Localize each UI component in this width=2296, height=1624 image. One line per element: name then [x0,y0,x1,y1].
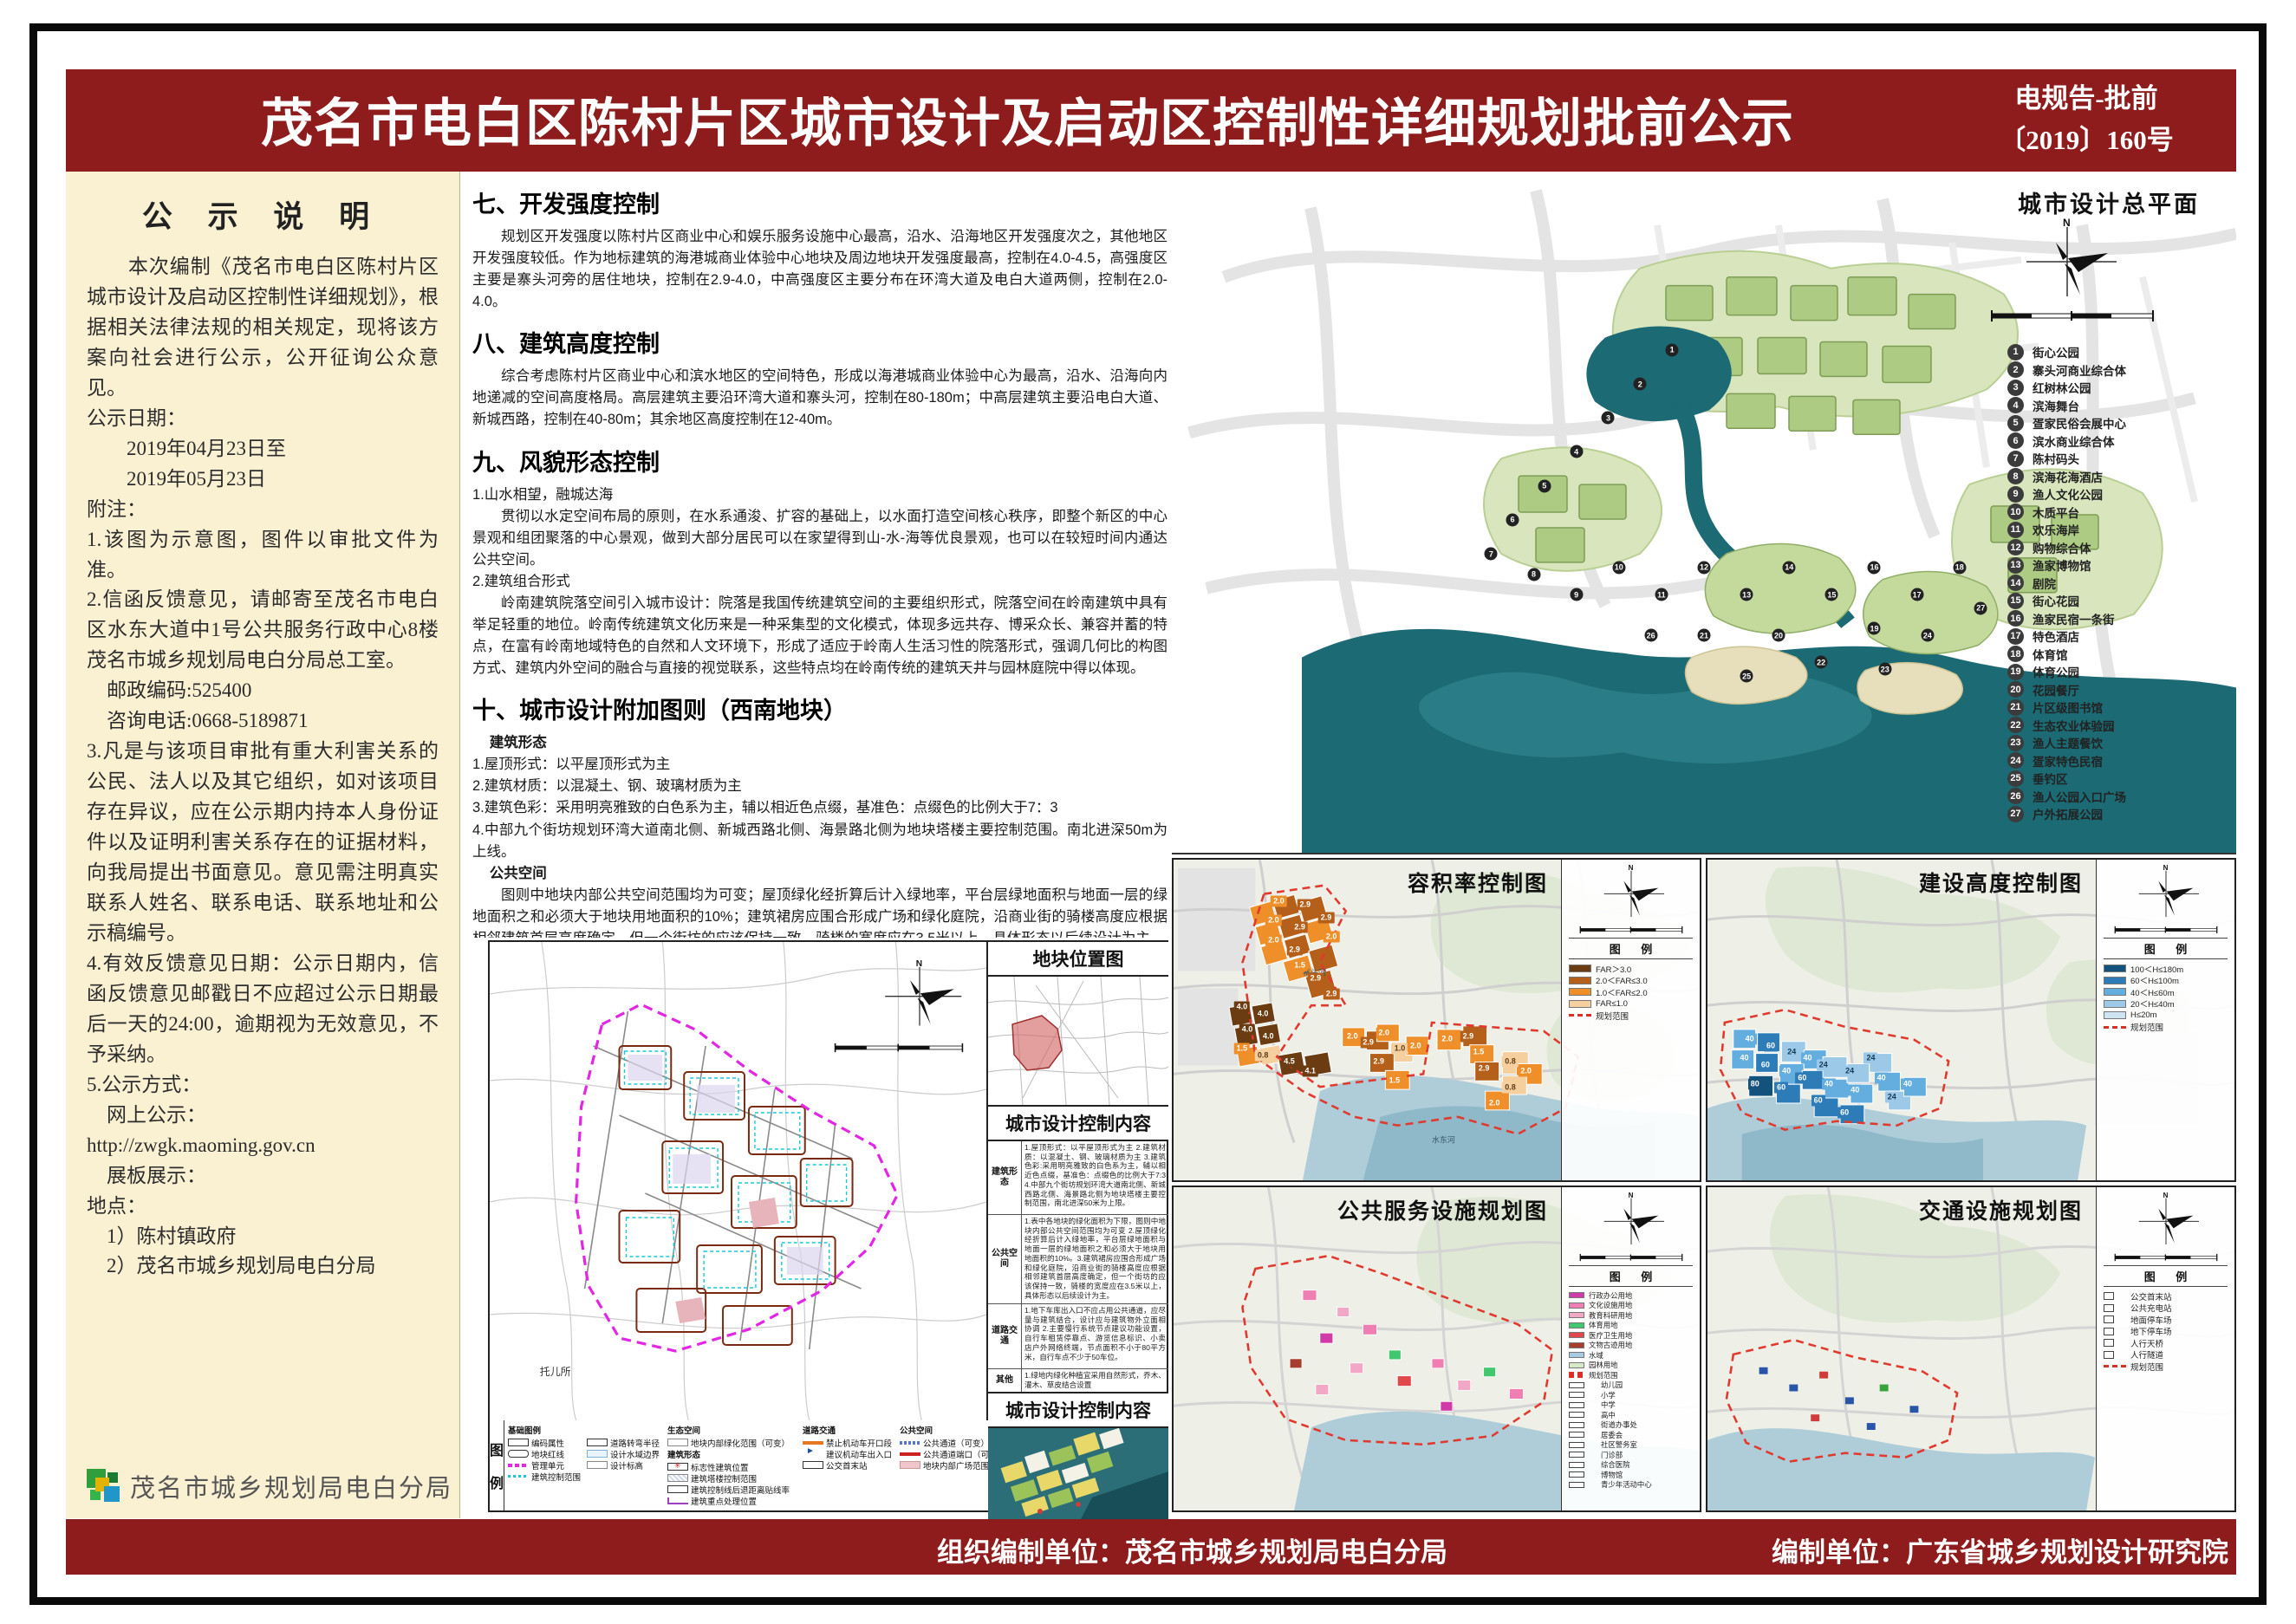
sidebar-paragraph: 邮政编码:525400 [87,676,439,706]
scale-bar [1579,926,1683,934]
far-value-chip: 2.0 [1344,1030,1361,1042]
legend-number-badge: 20 [2007,681,2024,698]
legend-swatch [1569,1312,1584,1318]
map-number-marker: 9 [1570,588,1583,601]
legend-row: 1.0＜FAR≤2.0 [1569,986,1693,998]
agency-logo-text: 茂名市城乡规划局电白分局 [130,1468,452,1504]
height-value-chip: 60 [1795,1072,1809,1083]
service-panel-title: 公共服务设施规划图 [1337,1194,1548,1225]
height-value-chip: 40 [1822,1079,1836,1090]
far-value-chip: 2.0 [1376,1027,1393,1038]
legend-number-badge: 9 [2007,486,2024,503]
legend-swatch [1569,1000,1591,1008]
height-value-chip: 60 [1764,1040,1778,1051]
sidebar-paragraph: 2019年05月23日 [87,464,439,495]
legend-label: 街心花园 [2033,592,2079,609]
legend-number-badge: 4 [2007,397,2024,413]
legend-symbol [667,1474,688,1482]
legend-row: 水域 [1569,1350,1693,1361]
master-legend-item: 11 欢乐海岸 [2007,521,2221,539]
map-number-marker: 19 [1868,622,1881,635]
legend-group-eco-form: 生态空间 地块内部绿化范围（可变） 建筑形态 标志性建筑位置 建筑塔楼控制范围 [667,1424,797,1507]
master-legend-item: 12 购物综合体 [2007,539,2221,557]
legend-header: 图 例 [2104,938,2228,959]
far-legend: 图 例 FAR＞3.0 2.0＜FAR≤3.0 1.0＜FAR≤2.0 FAR≤… [1561,860,1700,1180]
legend-number-badge: 12 [2007,539,2024,555]
control-table-title: 城市设计控制内容 [988,1105,1168,1141]
legend-label: 街心公园 [2033,343,2079,361]
master-legend-item: 22 生态农业体验园 [2007,717,2221,735]
legend-swatch [1569,1014,1591,1017]
height-value-chip: 24 [1817,1059,1831,1070]
master-legend-item: 15 街心花园 [2007,592,2221,610]
compass-icon [2126,1192,2206,1248]
render-title: 城市设计控制内容 [988,1392,1168,1428]
legend-swatch [2104,1026,2126,1029]
far-control-panel: 寨头河 水东河 2.02.92.02.92.02.92.92.01.52.92.… [1172,858,1701,1182]
legend-swatch [1569,1362,1584,1368]
legend-number-badge: 18 [2007,646,2024,662]
far-value-chip: 1.5 [1234,1043,1251,1055]
page-title: 茂名市电白区陈村片区城市设计及启动区控制性详细规划批前公示 [261,81,2042,157]
legend-swatch [2104,1292,2114,1300]
legend-row: 居委会 [1569,1430,1693,1440]
section10-paragraph2: 图则中地块内部公共空间范围均为可变；屋顶绿化经折算后计入绿地率，平台层绿地面积与… [472,885,1168,938]
legend-row: 人行隧道 [2104,1349,2228,1361]
section9-sub1: 1.山水相望，融城达海 [472,484,1168,506]
legend-label: 体育公园 [2033,663,2079,680]
legend-number-badge: 13 [2007,557,2024,574]
legend-swatch [2104,1011,2126,1019]
far-value-chip: 2.0 [1265,934,1282,945]
section10-item2: 2.建筑材质：以混凝土、钢、玻璃材质为主 [472,776,1168,797]
legend-swatch [1569,1442,1584,1448]
legend-label: 户外拓展公园 [2033,805,2103,822]
master-legend-item: 27 户外拓展公园 [2007,805,2221,823]
legend-label: 滨海舞台 [2033,397,2079,414]
public-service-panel: 公共服务设施规划图 图 例 行政办公用地 文化设施用地 教育科研用地 体育用地 [1172,1186,1701,1512]
legend-label: 疍家民俗会展中心 [2033,414,2126,432]
map-number-marker: 15 [1825,588,1838,601]
far-panel-title: 容积率控制图 [1408,867,1548,898]
height-value-chip: 60 [1811,1095,1825,1106]
control-row-public: 公共空间 1.表中各地块的绿化面积为下限，图则中地块内部公共空间范围均为可变 2… [988,1215,1168,1304]
map-number-marker: 21 [1698,629,1711,642]
legend-number-badge: 21 [2007,699,2024,716]
map-number-marker: 23 [1878,663,1891,676]
map-number-marker: 4 [1570,445,1583,458]
section7-heading: 七、开发强度控制 [472,185,1168,219]
legend-group-basic: 基础图例 编码属性 地块红线 管理单元 建筑控制范围 [508,1424,662,1507]
map-number-marker: 6 [1506,513,1519,526]
legend-number-badge: 2 [2007,361,2024,378]
legend-swatch [1569,1342,1584,1348]
legend-number-badge: 26 [2007,788,2024,804]
legend-label: 花园餐厅 [2033,681,2079,698]
legend-row: 教育科研用地 [1569,1310,1693,1321]
map-number-marker: 25 [1740,670,1753,683]
legend-swatch [1569,1372,1584,1378]
far-value-chip: 4.5 [1281,1056,1298,1068]
legend-row: 博物馆 [1569,1470,1693,1480]
far-value-chip: 2.0 [1271,896,1287,907]
location-map [988,977,1168,1105]
master-plan-title: 城市设计总平面 [2018,185,2200,219]
height-value-chip: 24 [1885,1091,1899,1102]
height-value-chip: 24 [1843,1066,1857,1077]
legend-swatch [2104,988,2126,996]
height-value-chip: 40 [1779,1066,1793,1077]
map-number-marker: 8 [1527,568,1540,581]
map-number-marker: 5 [1538,479,1551,492]
legend-number-badge: 19 [2007,664,2024,680]
legend-item: 设计标高 [587,1459,662,1471]
legend-label: 特色酒店 [2033,627,2079,645]
height-value-chip: 40 [1848,1085,1862,1096]
legend-row: 社区警务室 [1569,1440,1693,1451]
legend-number-badge: 24 [2007,752,2024,769]
legend-side-label: 图例 [490,1420,504,1510]
far-value-chip: 2.0 [1324,931,1340,942]
sidebar-title: 公 示 说 明 [87,192,439,237]
legend-row: FAR＞3.0 [1569,963,1693,975]
legend-row: 文物古迹用地 [1569,1341,1693,1351]
legend-symbol [667,1497,688,1504]
legend-swatch [1569,1392,1584,1398]
sidebar-paragraph: 1）陈村镇政府 [87,1222,439,1252]
legend-row: 100＜H≤180m [2104,963,2228,975]
legend-swatch [1569,1412,1584,1418]
legend-swatch [2104,1365,2126,1367]
legend-symbol [803,1441,823,1445]
document-number-line2: 〔2019〕160号 [1943,120,2229,161]
legend-swatch [1569,988,1591,996]
legend-item: 建筑重点处理位置 [667,1495,797,1506]
legend-swatch [1569,1422,1584,1428]
legend-row: 街道办事处 [1569,1420,1693,1431]
section9-paragraph2: 岭南建筑院落空间引入城市设计：院落是我国传统建筑空间的主要组织形式，院落空间在岭… [472,593,1168,679]
river-label-2: 水东河 [1432,1134,1455,1144]
section10-sub2: 公共空间 [472,863,1168,885]
legend-symbol [900,1441,920,1445]
agency-logo-icon [87,1469,121,1504]
control-table: 建筑形态 1.屋顶形式：以平屋顶形式为主 2.建筑材质：以混凝土、钢、玻璃材质为… [988,1141,1168,1392]
legend-label: 渔家博物馆 [2033,556,2091,574]
legend-label: 渔家民宿一条街 [2033,610,2115,627]
far-value-chip: 2.9 [1460,1030,1477,1042]
sidebar-paragraph: 公示日期： [87,404,439,434]
plan-side-panel: 地块位置图 城市设计控制内容 建筑形态 [988,942,1168,1510]
legend-row: 幼儿园 [1569,1380,1693,1391]
legend-item: 建筑塔楼控制范围 [667,1472,797,1484]
master-legend-item: 6 滨水商业综合体 [2007,432,2221,451]
legend-symbol [508,1450,529,1458]
legend-swatch [1569,1432,1584,1438]
footer-design-unit: 编制单位：广东省城乡规划设计研究院 [1772,1530,2228,1569]
legend-label: 滨海花海酒店 [2033,468,2103,485]
legend-symbol [587,1461,608,1469]
legend-symbol [508,1439,529,1446]
sidebar-paragraphs: 本次编制《茂名市电白区陈村片区城市设计及启动区控制性详细规划》，根据相关法律法规… [87,252,439,1282]
legend-row: 门诊部 [1569,1450,1693,1460]
section10-sub1: 建筑形态 [472,732,1168,754]
legend-swatch [1569,1462,1584,1468]
far-value-chip: 2.9 [1370,1056,1387,1068]
legend-swatch [2104,1351,2114,1359]
compass-icon [1591,1192,1671,1248]
legend-row: FAR≤1.0 [1569,998,1693,1010]
header-bar: 茂名市电白区陈村片区城市设计及启动区控制性详细规划批前公示 电规告-批前 〔20… [66,69,2236,172]
far-value-chip: 4.1 [1303,1066,1319,1077]
master-plan-region: 城市设计总平面 1 街心公园 2 寨头河商业综合体 3 红树林公园 4 滨海舞台… [1172,173,2236,854]
sidebar-paragraph: 2.信函反馈意见，请邮寄至茂名市电白区水东大道中1号公共服务行政中心8楼茂名市城… [87,585,439,676]
map-number-marker: 12 [1698,561,1711,574]
legend-symbol [587,1439,608,1446]
master-legend-item: 2 寨头河商业综合体 [2007,361,2221,380]
legend-swatch [1569,1302,1584,1309]
legend-header: 图 例 [1569,1265,1693,1287]
map-label-nursery: 托儿所 [540,1366,571,1378]
section10-heading: 十、城市设计附加图则（西南地块） [472,692,1168,725]
legend-swatch [1569,1471,1584,1478]
legend-swatch [2104,977,2126,984]
legend-number-badge: 14 [2007,575,2024,591]
sidebar-paragraph: 展板展示： [87,1161,439,1192]
far-value-chip: 2.9 [1291,921,1308,932]
legend-row: 中学 [1569,1400,1693,1411]
legend-symbol [667,1439,688,1446]
height-value-chip: 40 [1875,1072,1889,1083]
document-number-line1: 电规告-批前 [1943,78,2229,120]
text-column: 七、开发强度控制 规划区开发强度以陈村片区商业中心和娱乐服务设施中心最高，沿水、… [472,173,1168,938]
map-number-marker: 1 [1666,343,1679,356]
legend-swatch [1569,1482,1584,1488]
map-number-marker: 27 [1974,601,1987,614]
legend-label: 木质平台 [2033,503,2079,521]
map-number-marker: 14 [1783,561,1796,574]
height-value-chip: 24 [1785,1047,1798,1058]
master-legend-item: 3 红树林公园 [2007,379,2221,397]
master-legend-item: 9 渔人文化公园 [2007,485,2221,503]
legend-label: 垂钓区 [2033,770,2068,787]
map-number-marker: 20 [1772,629,1785,642]
master-legend-item: 8 滨海花海酒店 [2007,468,2221,486]
legend-symbol [900,1461,920,1469]
section7-paragraph: 规划区开发强度以陈村片区商业中心和娱乐服务设施中心最高，沿水、沿海地区开发强度次… [472,226,1168,313]
legend-swatch [1569,1352,1584,1358]
legend-swatch [1569,1322,1584,1328]
sidebar-paragraph: 网上公示： [87,1101,439,1131]
map-number-marker: 11 [1655,588,1668,601]
legend-row: 人行天桥 [2104,1337,2228,1349]
far-value-chip: 2.0 [1265,915,1282,926]
compass-icon [2011,218,2124,302]
legend-row: 综合医院 [1569,1460,1693,1471]
compass-icon [2126,865,2206,920]
legend-swatch [1569,965,1591,972]
legend-swatch [2104,1328,2114,1335]
legend-item: 标志性建筑位置 [667,1461,797,1472]
section9-paragraph1: 贯彻以水定空间布局的原则，在水系通浚、扩容的基础上，以水面打造空间核心秩序，即整… [472,506,1168,571]
master-plan-legend: 1 街心公园 2 寨头河商业综合体 3 红树林公园 4 滨海舞台 5 疍家民俗会… [2007,343,2221,823]
map-number-marker: 22 [1815,656,1828,669]
legend-label: 购物综合体 [2033,539,2091,556]
footer-bar: 组织编制单位：茂名市城乡规划局电白分局 编制单位：广东省城乡规划设计研究院 [66,1519,2236,1575]
far-value-chip: 2.9 [1318,912,1335,923]
legend-number-badge: 3 [2007,380,2024,396]
master-legend-item: 17 特色酒店 [2007,627,2221,646]
legend-item: 编码属性 [508,1437,583,1448]
map-number-marker: 24 [1921,629,1934,642]
control-row-other: 其他 1.绿地内绿化种植宜采用自然形式，乔木、灌木、草皮结合设置 [988,1369,1168,1392]
legend-label: 疍家特色民宿 [2033,752,2103,770]
legend-swatch [2104,1304,2114,1312]
detailed-plan-figure: 托儿所 图例 基础图例 编码属性 地块红线 [488,940,1168,1512]
legend-label: 剧院 [2033,575,2056,592]
section8-paragraph: 综合考虑陈村片区商业中心和滨水地区的空间特色，形成以海港城商业体验中心为最高，沿… [472,366,1168,431]
legend-label: 红树林公园 [2033,379,2091,396]
legend-row: 园林用地 [1569,1361,1693,1371]
legend-number-badge: 8 [2007,468,2024,484]
legend-label: 滨水商业综合体 [2033,432,2115,450]
legend-row: 体育用地 [1569,1321,1693,1331]
master-legend-item: 23 渔人主题餐饮 [2007,734,2221,752]
master-legend-item: 13 渔家博物馆 [2007,556,2221,575]
far-value-chip: 1.5 [1471,1047,1487,1058]
master-legend-item: 16 渔家民宿一条街 [2007,610,2221,628]
legend-row: 公共充电站 [2104,1302,2228,1315]
scale-bar [2114,926,2218,934]
legend-symbol [508,1464,529,1467]
section9-sub2: 2.建筑组合形式 [472,571,1168,593]
map-number-marker: 3 [1602,412,1615,425]
legend-header: 图 例 [2104,1265,2228,1287]
sidebar-paragraph: 本次编制《茂名市电白区陈村片区城市设计及启动区控制性详细规划》，根据相关法律法规… [87,252,439,404]
far-value-chip: 2.9 [1476,1062,1493,1074]
legend-number-badge: 10 [2007,503,2024,520]
far-value-chip: 2.9 [1286,944,1303,955]
section10-item3: 3.建筑色彩：采用明亮雅致的白色系为主，辅以相近色点缀，基准色：点缀色的比例大于… [472,797,1168,819]
legend-number-badge: 11 [2007,522,2024,538]
compass-icon [872,958,967,1032]
map-number-marker: 26 [1644,629,1657,642]
legend-swatch [2104,1315,2114,1323]
legend-header: 图 例 [1569,938,1693,959]
legend-symbol [803,1461,823,1469]
legend-number-badge: 27 [2007,806,2024,822]
far-value-chip: 1.5 [1387,1075,1403,1087]
scale-bar [2114,1253,2218,1262]
master-legend-item: 7 陈村码头 [2007,450,2221,468]
legend-label: 渔人文化公园 [2033,485,2103,503]
legend-swatch [2104,1000,2126,1008]
height-value-chip: 40 [1738,1053,1752,1064]
height-value-chip: 80 [1748,1079,1762,1090]
far-value-chip: 4.0 [1255,1008,1272,1019]
far-value-chip: 4.0 [1260,1030,1277,1042]
footer-organizing-unit: 组织编制单位：茂名市城乡规划局电白分局 [937,1530,1447,1569]
far-value-chip: 1.5 [1291,960,1308,971]
master-legend-item: 19 体育公园 [2007,663,2221,681]
map-number-marker: 10 [1612,561,1625,574]
far-value-chip: 2.9 [1324,989,1340,1000]
legend-swatch [2104,1339,2114,1347]
height-value-chip: 60 [1759,1059,1772,1070]
legend-swatch [1569,1332,1584,1338]
compass-icon [1591,865,1671,920]
legend-item: 建筑控制范围 [508,1471,583,1482]
legend-number-badge: 25 [2007,770,2024,787]
sidebar-paragraph: 5.公示方式： [87,1070,439,1101]
traffic-legend: 图 例 公交首末站 公共充电站 地面停车场 地下停车场 人行天桥 [2096,1187,2234,1510]
master-legend-item: 26 渔人公园入口广场 [2007,788,2221,806]
legend-row: 小学 [1569,1390,1693,1400]
legend-swatch [1569,1402,1584,1408]
legend-row: 医疗卫生用地 [1569,1330,1693,1341]
legend-item: 设计水域边界 [587,1448,662,1459]
legend-item: 建筑控制线后退距离贴线率 [667,1484,797,1495]
legend-label: 寨头河商业综合体 [2033,361,2126,379]
legend-row: 地下停车场 [2104,1326,2228,1338]
legend-row: H≤20m [2104,1010,2228,1022]
notice-board: N 茂名市电白区陈村片区城市设计及启动区控制性详细规划批前公示 电规告-批前 〔… [0,0,2296,1624]
section10-item4: 4.中部九个街坊规划环湾大道南北侧、新城西路北侧、海景路北侧为地块塔楼主要控制范… [472,820,1168,863]
notice-sidebar: 公 示 说 明 本次编制《茂名市电白区陈村片区城市设计及启动区控制性详细规划》，… [66,172,460,1518]
sidebar-paragraph: 3.凡是与该项目审批有重大利害关系的公民、法人以及其它组织，如对该项目存在异议，… [87,737,439,949]
height-value-chip: 24 [1863,1053,1877,1064]
legend-row: 规划范围 [1569,1010,1693,1022]
scale-bar [1579,1253,1683,1262]
legend-number-badge: 6 [2007,432,2024,449]
legend-group-road: 道路交通 禁止机动车开口段 建议机动车出入口 公交首末站 [803,1424,894,1507]
traffic-panel-title: 交通设施规划图 [1919,1194,2083,1225]
legend-label: 欢乐海岸 [2033,521,2079,538]
legend-number-badge: 22 [2007,717,2024,733]
scale-bar [834,1043,964,1053]
legend-label: 渔人主题餐饮 [2033,734,2103,751]
legend-number-badge: 1 [2007,344,2024,361]
legend-item: 管理单元 [508,1459,583,1471]
control-row-road: 道路交通 1.地下车库出入口不应占用公共通道，应尽量与建筑结合，设计应与建筑物外… [988,1304,1168,1369]
legend-row: 规划范围 [2104,1022,2228,1034]
legend-row: 行政办公用地 [1569,1290,1693,1301]
far-value-chip: 0.8 [1502,1082,1519,1093]
height-legend: 图 例 100＜H≤180m 60＜H≤100m 40＜H≤60m 20＜H≤4… [2096,860,2234,1180]
height-control-panel: 4060406024406080406024406024402440244060… [1706,858,2236,1182]
legend-item: 公交首末站 [803,1459,894,1471]
legend-number-badge: 17 [2007,628,2024,645]
height-value-chip: 60 [1837,1108,1851,1119]
map-number-marker: 18 [1953,561,1966,574]
legend-swatch [1569,977,1591,984]
master-legend-item: 4 滨海舞台 [2007,397,2221,415]
scale-bar [1990,310,2155,322]
height-value-chip: 60 [1774,1082,1788,1093]
document-number: 电规告-批前 〔2019〕160号 [1943,78,2229,161]
legend-number-badge: 23 [2007,735,2024,751]
plan-legend: 图例 基础图例 编码属性 地块红线 管理单元 [490,1420,988,1510]
master-legend-item: 14 剧院 [2007,575,2221,593]
master-legend-item: 1 街心公园 [2007,343,2221,361]
legend-number-badge: 7 [2007,451,2024,467]
map-number-marker: 13 [1740,588,1753,601]
far-value-chip: 2.0 [1408,1040,1424,1051]
far-value-chip: 4.0 [1239,1024,1256,1036]
legend-item: 道路转弯半径 [587,1437,662,1448]
map-number-marker: 16 [1868,561,1881,574]
far-value-chip: 2.0 [1486,1098,1503,1109]
section8-heading: 八、建筑高度控制 [472,325,1168,359]
